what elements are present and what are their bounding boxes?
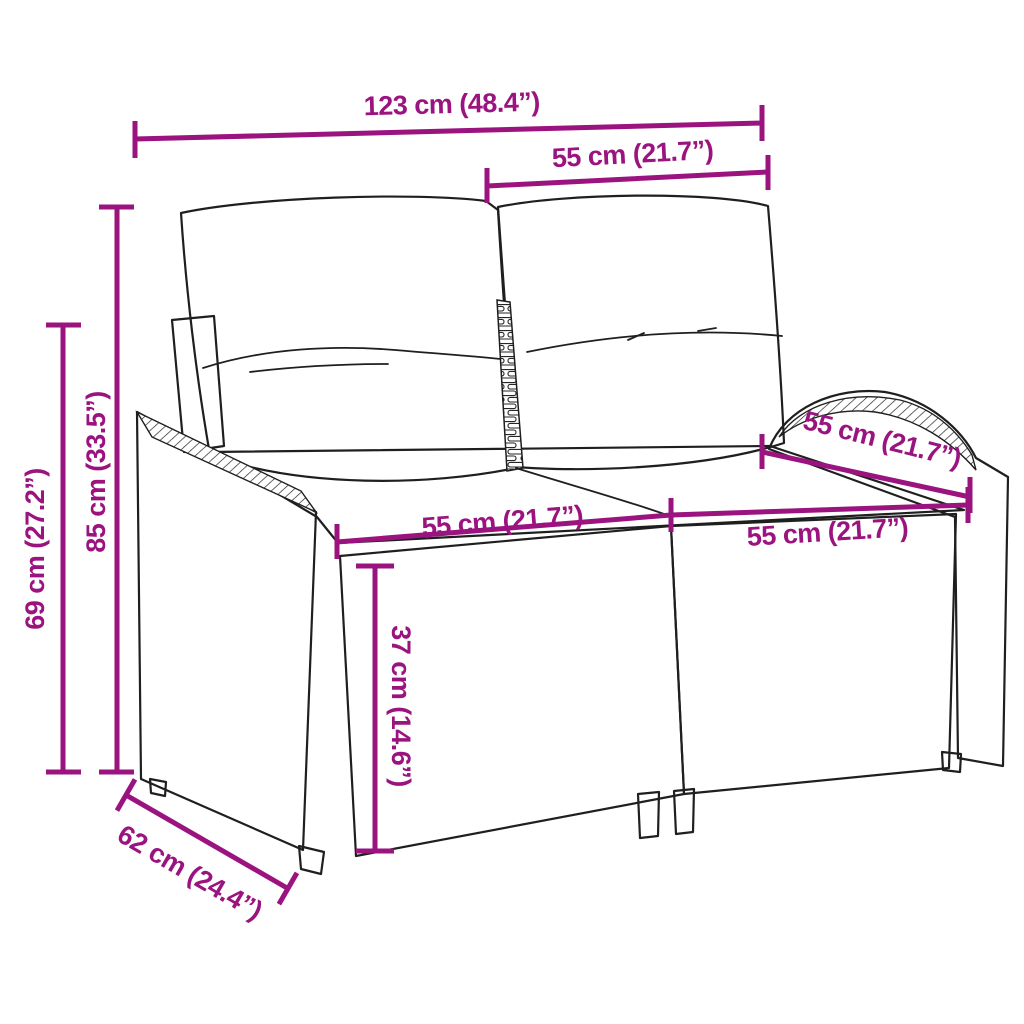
base-front-right bbox=[671, 514, 956, 794]
dim-overall-depth-label: 62 cm (24.4”) bbox=[112, 819, 267, 926]
dimension-diagram: 123 cm (48.4”) 55 cm (21.7”) 85 cm (33.5… bbox=[0, 0, 1024, 1024]
dim-overall-width-label: 123 cm (48.4”) bbox=[363, 87, 540, 122]
dim-armrest-height-label: 69 cm (27.2”) bbox=[20, 468, 50, 630]
dim-armrest-height-line bbox=[46, 325, 81, 772]
back-cushion-left bbox=[181, 197, 516, 481]
dim-seat-height-label: 37 cm (14.6”) bbox=[386, 625, 416, 787]
dim-backrest-section-width-label: 55 cm (21.7”) bbox=[551, 135, 714, 173]
backrest-gap-wicker bbox=[497, 300, 523, 471]
dimension-annotations: 123 cm (48.4”) 55 cm (21.7”) 85 cm (33.5… bbox=[20, 87, 970, 932]
diagram-svg: 123 cm (48.4”) 55 cm (21.7”) 85 cm (33.5… bbox=[0, 0, 1024, 1024]
back-cushion-right-crease bbox=[527, 333, 782, 352]
dim-backrest-section-width: 55 cm (21.7”) bbox=[487, 135, 768, 203]
back-cushion-left-fold bbox=[250, 364, 388, 372]
dim-overall-height: 85 cm (33.5”) bbox=[81, 207, 134, 772]
dim-overall-height-label: 85 cm (33.5”) bbox=[81, 391, 111, 553]
dim-armrest-height: 69 cm (27.2”) bbox=[20, 325, 81, 772]
dim-overall-depth: 62 cm (24.4”) bbox=[101, 779, 297, 931]
left-armrest-slope-hatch bbox=[137, 412, 316, 512]
dim-seat-height: 37 cm (14.6”) bbox=[356, 566, 416, 851]
dim-seat-width-right-label: 55 cm (21.7”) bbox=[746, 512, 909, 552]
left-armrest bbox=[137, 412, 316, 850]
